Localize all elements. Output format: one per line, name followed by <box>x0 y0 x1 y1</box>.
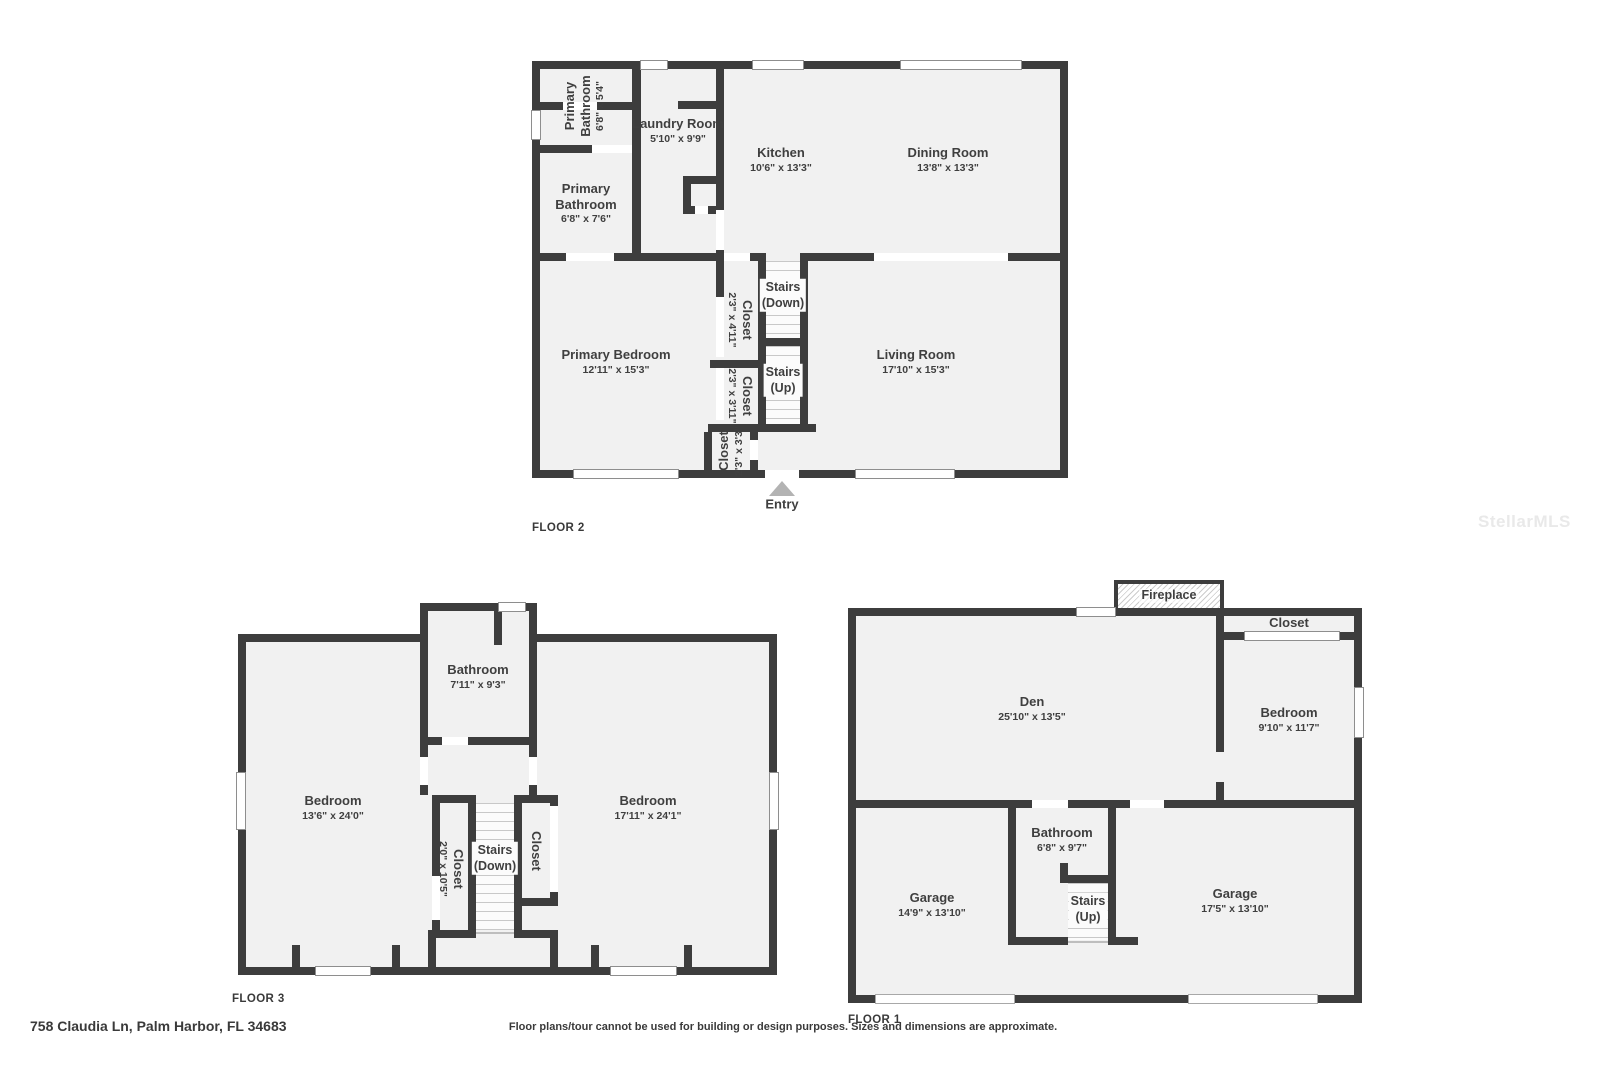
room-name: Stairs <box>474 842 516 858</box>
wall <box>683 176 716 184</box>
wall <box>678 101 716 109</box>
door-gap <box>716 297 724 357</box>
wall <box>420 737 442 745</box>
door-gap <box>750 440 758 460</box>
room-dims: 6'8" x 7'6" <box>540 212 632 227</box>
wall <box>704 432 712 470</box>
room-dims: (Down) <box>762 295 804 311</box>
room-dims: 9'10" x 11'7" <box>1258 720 1319 735</box>
stair-edge-line <box>1068 941 1108 943</box>
room-label-bedroom-right-f3: Bedroom 17'11" x 24'1" <box>615 793 682 823</box>
room-name: Bedroom <box>302 793 364 809</box>
door-gap <box>716 210 724 250</box>
wall <box>632 69 641 253</box>
room-label-living-room: Living Room 17'10" x 15'3" <box>877 347 956 377</box>
wall <box>540 102 563 110</box>
room-label-closet-3-f2: Closet 2'3" x 3'3" <box>716 426 746 476</box>
wall <box>550 930 558 967</box>
room-label-bathroom-f1: Bathroom 6'8" x 9'7" <box>1031 825 1092 855</box>
room-dims: 6'8" x 5'4" <box>593 60 608 152</box>
window <box>236 772 246 830</box>
window <box>1076 607 1116 617</box>
wall <box>708 206 716 214</box>
window <box>855 469 955 479</box>
room-name: Primary Bedroom <box>561 347 670 363</box>
room-name: Primary Bathroom <box>562 60 593 152</box>
window <box>769 772 779 830</box>
room-dims: 6'8" x 9'7" <box>1031 840 1092 855</box>
wall <box>529 642 537 737</box>
room-name: Bedroom <box>615 793 682 809</box>
wall <box>758 338 808 346</box>
window <box>900 60 1022 70</box>
room-dims: 25'10" x 13'5" <box>998 709 1066 724</box>
entry-arrow-icon <box>769 481 795 496</box>
room-label-primary-bathroom: Primary Bathroom 6'8" x 7'6" <box>540 181 632 227</box>
room-label-primary-bedroom: Primary Bedroom 12'11" x 15'3" <box>561 347 670 377</box>
wall <box>750 460 758 470</box>
wall <box>436 930 468 938</box>
room-name: Fireplace <box>1139 589 1200 603</box>
door-gap <box>724 253 750 261</box>
window <box>573 469 679 479</box>
door-gap <box>695 206 708 214</box>
room-label-stairs-up-f2: Stairs (Up) <box>764 364 803 397</box>
door-gap <box>529 757 537 785</box>
room-label-closet-2-f2: Closet 2'3" x 3'11" <box>725 368 755 423</box>
property-address: 758 Claudia Ln, Palm Harbor, FL 34683 <box>30 1018 287 1034</box>
room-name: Closet <box>451 841 467 897</box>
wall <box>1216 616 1224 752</box>
room-label-garage-left: Garage 14'9" x 13'10" <box>898 890 966 920</box>
wall <box>1164 800 1362 808</box>
room-name: Bedroom <box>1258 705 1319 721</box>
door-gap <box>420 757 428 785</box>
wall <box>428 930 436 967</box>
door-gap <box>716 368 724 420</box>
room-name: Closet <box>740 368 756 423</box>
room-name: Dining Room <box>908 145 989 161</box>
window <box>1354 687 1364 738</box>
wall <box>1008 937 1068 945</box>
wall <box>1340 632 1354 640</box>
wall <box>856 800 1032 808</box>
room-label-garage-right: Garage 17'5" x 13'10" <box>1201 886 1269 916</box>
fireplace: Fireplace <box>1114 580 1224 612</box>
garage-door <box>1188 994 1318 1004</box>
window <box>531 110 541 140</box>
wall <box>238 634 420 642</box>
room-dims: 13'6" x 24'0" <box>302 808 364 823</box>
wall <box>292 945 300 967</box>
floorplan-canvas: Primary Bathroom 6'8" x 5'4" Laundry Roo… <box>0 0 1600 1066</box>
door-gap <box>874 253 1008 261</box>
room-name: Den <box>998 694 1066 710</box>
room-label-stairs-down-f3: Stairs (Down) <box>472 842 518 875</box>
door-gap <box>550 806 558 892</box>
wall <box>529 603 537 642</box>
room-label-den: Den 25'10" x 13'5" <box>998 694 1066 724</box>
room-name: Kitchen <box>750 145 812 161</box>
wall <box>420 642 428 737</box>
door-gap <box>1032 800 1068 808</box>
door-gap <box>566 253 614 261</box>
wall <box>800 253 874 261</box>
floor-2-tag: FLOOR 2 <box>532 522 585 534</box>
room-name: Bathroom <box>1031 825 1092 841</box>
room-name: Stairs <box>766 364 801 380</box>
room-dims: 2'0" x 10'5" <box>436 841 451 897</box>
room-dims: 17'11" x 24'1" <box>615 808 682 823</box>
wall <box>514 898 558 906</box>
room-dims: (Down) <box>474 858 516 874</box>
stellar-mls-watermark: StellarMLS <box>1478 512 1571 532</box>
room-dims: (Up) <box>766 380 801 396</box>
room-dims: 14'9" x 13'10" <box>898 905 966 920</box>
room-name: Closet <box>1269 615 1309 631</box>
room-label-bathroom-f3: Bathroom 7'11" x 9'3" <box>447 662 508 692</box>
wall <box>1060 61 1068 478</box>
room-name: Bathroom <box>447 662 508 678</box>
wall <box>1008 808 1016 945</box>
room-dims: 2'3" x 4'11" <box>725 292 740 347</box>
floor-3-tag: FLOOR 3 <box>232 993 285 1005</box>
window <box>498 602 526 612</box>
room-dims: 2'3" x 3'11" <box>725 368 740 423</box>
room-dims: 2'3" x 3'3" <box>731 426 746 476</box>
door-gap <box>1130 800 1164 808</box>
wall <box>1008 253 1060 261</box>
entry-label: Entry <box>765 497 798 512</box>
wall <box>494 611 502 645</box>
room-dims: 17'10" x 15'3" <box>877 362 956 377</box>
room-dims: 5'10" x 9'9" <box>632 131 724 146</box>
wall <box>716 261 724 297</box>
wall <box>420 603 428 642</box>
wall <box>392 945 400 967</box>
room-fill <box>428 611 529 651</box>
disclaimer-text: Floor plans/tour cannot be used for buil… <box>509 1021 1057 1033</box>
window <box>315 966 371 976</box>
room-dims: 13'8" x 13'3" <box>908 160 989 175</box>
wall <box>1108 937 1138 945</box>
wall <box>514 930 550 938</box>
wall <box>540 253 566 261</box>
room-label-closet-top-f1: Closet <box>1269 615 1309 631</box>
room-label-primary-bathroom-upper: Primary Bathroom 6'8" x 5'4" <box>562 60 608 152</box>
room-dims: 17'5" x 13'10" <box>1201 901 1269 916</box>
wall <box>1068 800 1130 808</box>
wall <box>614 253 724 261</box>
wall <box>1060 875 1116 883</box>
room-dims: 12'11" x 15'3" <box>561 362 670 377</box>
room-name: Living Room <box>877 347 956 363</box>
room-dims: (Up) <box>1071 909 1106 925</box>
room-dims: 10'6" x 13'3" <box>750 160 812 175</box>
room-name: Closet <box>528 831 544 871</box>
door-gap <box>442 737 468 745</box>
room-label-closet-1-f2: Closet 2'3" x 4'11" <box>725 292 755 347</box>
room-label-bedroom-f1: Bedroom 9'10" x 11'7" <box>1258 705 1319 735</box>
wall <box>468 737 537 745</box>
room-name: Closet <box>740 292 756 347</box>
room-name: Stairs <box>762 279 804 295</box>
stair-edge-line <box>476 932 514 934</box>
door-gap <box>765 470 799 478</box>
room-name: Garage <box>1201 886 1269 902</box>
wall <box>684 945 692 967</box>
wall <box>537 634 777 642</box>
wall <box>591 945 599 967</box>
room-label-closet-right-f3: Closet <box>528 831 544 871</box>
wall <box>683 206 695 214</box>
room-name: Primary Bathroom <box>540 181 632 212</box>
room-name: Stairs <box>1071 893 1106 909</box>
room-label-stairs-up-f1: Stairs (Up) <box>1069 893 1108 926</box>
room-name: Closet <box>716 426 732 476</box>
room-label-bedroom-left-f3: Bedroom 13'6" x 24'0" <box>302 793 364 823</box>
wall <box>848 608 856 1003</box>
window <box>1244 631 1340 641</box>
garage-door <box>875 994 1015 1004</box>
wall <box>750 432 758 440</box>
room-name: Garage <box>898 890 966 906</box>
room-label-laundry-room: Laundry Room 5'10" x 9'9" <box>632 116 724 146</box>
window <box>640 60 668 70</box>
window <box>610 966 677 976</box>
window <box>752 60 804 70</box>
room-label-dining-room: Dining Room 13'8" x 13'3" <box>908 145 989 175</box>
room-label-stairs-down-f2: Stairs (Down) <box>760 279 806 312</box>
room-name: Laundry Room <box>632 116 724 132</box>
room-label-kitchen: Kitchen 10'6" x 13'3" <box>750 145 812 175</box>
room-label-closet-left-f3: Closet 2'0" x 10'5" <box>436 841 466 897</box>
room-dims: 7'11" x 9'3" <box>447 677 508 692</box>
